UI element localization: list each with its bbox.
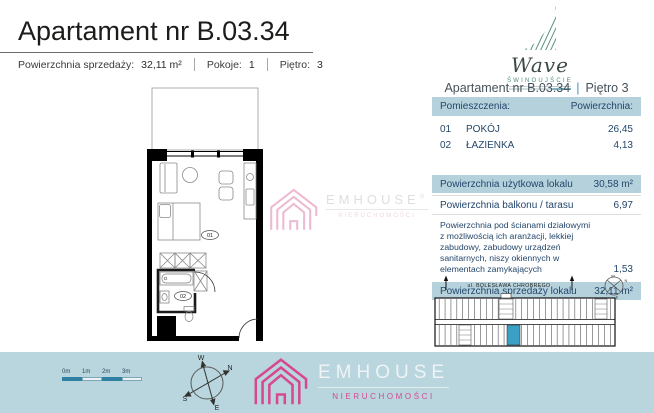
registered-mark: ® xyxy=(420,195,428,201)
meta-separator xyxy=(194,58,195,71)
meta-value: 3 xyxy=(317,59,323,71)
compass-w: W xyxy=(198,355,205,362)
unit-number: Apartament nr B.03.34 xyxy=(444,81,570,95)
meta-label: Pokoje: xyxy=(207,59,242,71)
room-area: 4,13 xyxy=(614,140,633,151)
toilet xyxy=(184,307,194,312)
built-in-niche xyxy=(194,271,207,291)
table-row: 01 POKÓJ 26,45 xyxy=(432,121,641,137)
emhouse-name: EMHOUSE xyxy=(318,362,449,388)
flyer-page: Apartament nr B.03.34 Powierzchnia sprze… xyxy=(0,0,654,413)
svg-text:E: E xyxy=(616,295,619,300)
emhouse-sub: NIERUCHOMOŚCI xyxy=(318,392,449,401)
table-row: 02 ŁAZIENKA 4,13 xyxy=(432,137,641,153)
room1-tag: 01 xyxy=(207,233,213,239)
compass-n: N xyxy=(227,365,232,372)
meta-label: Powierzchnia sprzedaży: xyxy=(18,59,134,71)
wave-sail-icon xyxy=(500,4,580,52)
summary-row-balcony: Powierzchnia balkonu / tarasu 6,97 xyxy=(432,195,641,215)
room-name: ŁAZIENKA xyxy=(466,140,614,151)
chair xyxy=(219,187,233,200)
summary-row-walls: Powierzchnia pod ścianami działowymi z m… xyxy=(432,215,641,280)
emhouse-logo: EMHOUSE NIERUCHOMOŚCI xyxy=(250,355,449,407)
unit-floor: Piętro 3 xyxy=(585,81,628,95)
scale-labels: 0m 1m 2m 3m xyxy=(62,369,182,375)
table-round xyxy=(183,168,198,183)
summary-label: Powierzchnia użytkowa lokalu xyxy=(440,179,573,190)
emhouse-house-icon xyxy=(250,355,308,407)
meta-value: 32,11 m² xyxy=(141,59,182,71)
watermark-name: EMHOUSE® xyxy=(326,192,428,210)
meta-rooms: Pokoje:1 xyxy=(207,59,255,71)
panel-separator: | xyxy=(576,81,579,95)
meta-separator xyxy=(267,58,268,71)
wave-name: Wave xyxy=(500,53,580,77)
siteplan: ul. BOLESŁAWA CHROBREGO W N S E xyxy=(433,274,639,350)
meta-label: Piętro: xyxy=(280,59,310,71)
compass-e: E xyxy=(215,405,220,412)
svg-text:S: S xyxy=(601,289,604,294)
col-area: Powierzchnia: xyxy=(571,101,633,112)
room2-tag: 02 xyxy=(180,294,186,300)
building-outline xyxy=(435,294,615,347)
table-header: Pomieszczenia: Powierzchnia: xyxy=(432,97,641,116)
summary-value: 6,97 xyxy=(614,200,633,211)
room-labels: 01 02 xyxy=(175,231,219,301)
col-rooms: Pomieszczenia: xyxy=(440,101,510,112)
compass-rose-icon: W N S E xyxy=(180,352,236,412)
scale-bar-segments xyxy=(62,377,182,381)
balcony-window xyxy=(167,151,243,158)
siteplan-compass-icon: W N S E xyxy=(601,274,628,300)
page-title: Apartament nr B.03.34 xyxy=(18,16,290,47)
svg-text:N: N xyxy=(625,278,628,283)
meta-value: 1 xyxy=(249,59,255,71)
pillow xyxy=(160,205,171,218)
chair xyxy=(219,171,233,184)
room-area: 26,45 xyxy=(608,124,633,135)
sofa xyxy=(160,163,177,193)
sink xyxy=(160,291,169,303)
floorplan-drawing: 01 02 xyxy=(138,85,270,347)
summary-value: 30,58 m² xyxy=(594,179,633,190)
emhouse-logo-text: EMHOUSE NIERUCHOMOŚCI xyxy=(318,362,449,407)
entry-door-arc xyxy=(239,319,258,338)
unit-panel-title: Apartament nr B.03.34|Piętro 3 xyxy=(432,81,641,95)
header-meta: Powierzchnia sprzedaży:32,11 m² Pokoje:1… xyxy=(18,58,323,71)
rooms-list: 01 POKÓJ 26,45 02 ŁAZIENKA 4,13 xyxy=(432,116,641,173)
title-divider xyxy=(0,52,313,53)
wave-logo: Wave ŚWINOUJŚCIE xyxy=(500,4,580,90)
summary-row-usable: Powierzchnia użytkowa lokalu 30,58 m² xyxy=(432,175,641,193)
areas-table: Pomieszczenia: Powierzchnia: 01 POKÓJ 26… xyxy=(432,97,641,302)
wardrobe xyxy=(160,253,206,268)
watermark: EMHOUSE® NIERUCHOMOŚCI xyxy=(266,186,428,232)
meta-sale-area: Powierzchnia sprzedaży:32,11 m² xyxy=(18,59,182,71)
room-number: 02 xyxy=(440,140,466,151)
watermark-text: EMHOUSE® NIERUCHOMOŚCI xyxy=(326,192,428,232)
svg-text:W: W xyxy=(611,274,615,279)
highlighted-unit xyxy=(507,325,520,345)
street-label: ul. BOLESŁAWA CHROBREGO xyxy=(468,283,551,289)
summary-label: Powierzchnia pod ścianami działowymi z m… xyxy=(440,220,592,275)
summary-label: Powierzchnia balkonu / tarasu xyxy=(440,200,573,211)
bed xyxy=(158,203,200,240)
compass-s: S xyxy=(183,396,188,403)
balcony-outline xyxy=(152,88,258,150)
shaft xyxy=(157,316,176,336)
room-number: 01 xyxy=(440,124,466,135)
room-name: POKÓJ xyxy=(466,124,608,135)
scale-bar: 0m 1m 2m 3m xyxy=(62,369,182,381)
meta-floor: Piętro:3 xyxy=(280,59,323,71)
watermark-sub: NIERUCHOMOŚCI xyxy=(326,213,428,219)
bathroom-door-arc xyxy=(195,272,215,292)
emhouse-house-icon xyxy=(266,186,318,232)
